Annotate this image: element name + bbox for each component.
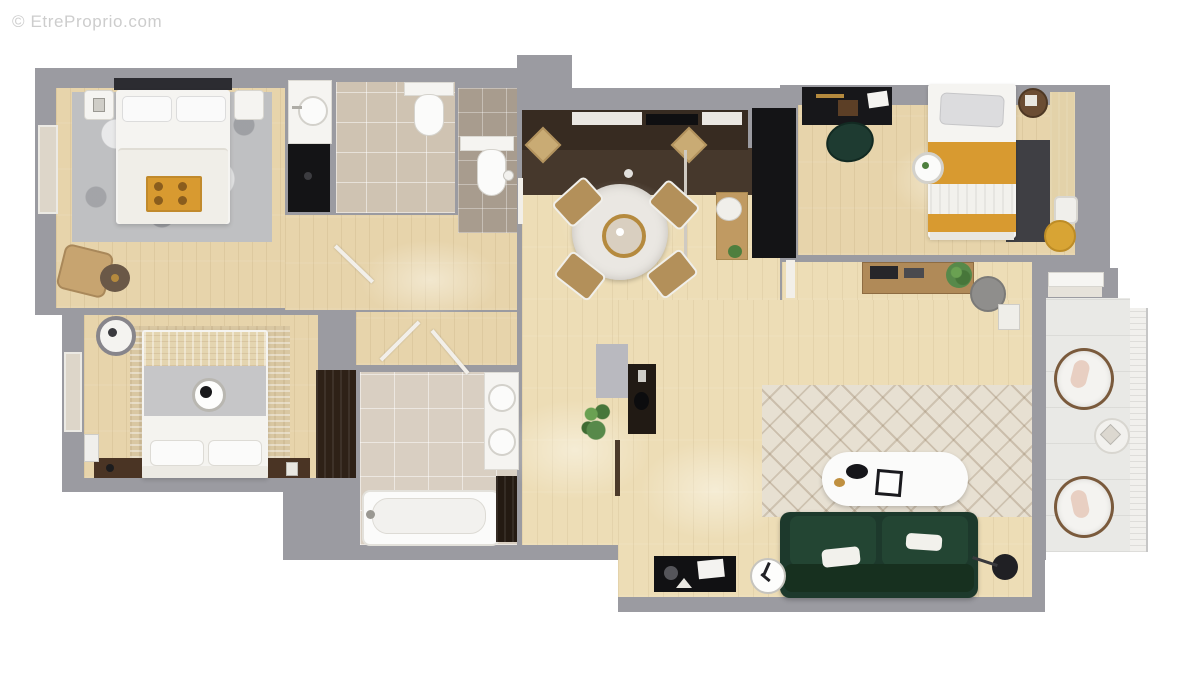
bedroom1-pillow: [122, 96, 172, 122]
console-vase: [634, 392, 649, 410]
desk-chair-white: [716, 197, 742, 221]
floor-kitchen-dark: [522, 148, 780, 195]
kitchen-tall-wardrobe: [752, 108, 796, 258]
desk-paper: [867, 91, 889, 109]
shower-room-sink: [298, 96, 328, 126]
sofa-pillow: [905, 533, 942, 551]
console-decor-dark: [870, 266, 898, 279]
bedroom2-window: [64, 352, 82, 432]
balcony-door: [1048, 272, 1104, 287]
nightstand-item: [106, 464, 114, 472]
bedroom2-footboard: [142, 466, 268, 478]
bedroom2-nightstand-left: [94, 458, 142, 478]
living-plant: [580, 398, 612, 444]
bedroom1-headboard: [114, 78, 232, 90]
kitchen-counter-marble: [572, 112, 642, 125]
bedroom2-radiator: [84, 434, 99, 462]
bedroom2-pillow: [208, 440, 262, 466]
nightstand-lamp: [93, 98, 105, 112]
living-wall-stub: [596, 344, 628, 398]
floor-lamp: [992, 554, 1018, 580]
living-hall-door: [615, 440, 620, 496]
tv-console-papers: [697, 559, 725, 580]
desk-pen-strip: [816, 94, 844, 98]
shower-drain: [304, 172, 312, 180]
bedroom2-top-blanket: [144, 332, 266, 366]
floor-plan-canvas: © EtreProprio.com: [0, 0, 1200, 675]
bathroom2-cabinet: [496, 476, 517, 542]
kitchen-door: [518, 178, 523, 224]
ceiling-light-dot: [624, 169, 633, 178]
tray-plate: [154, 182, 163, 191]
coffee-table-gold-item: [834, 478, 845, 487]
console-plant: [946, 262, 972, 288]
tray-plate: [178, 182, 187, 191]
bathtub-faucet: [366, 510, 375, 519]
bedroom3-pillow: [939, 92, 1005, 127]
tray-plate: [154, 196, 163, 205]
coffee-table-frame: [875, 469, 903, 497]
bathtub-inner: [372, 498, 486, 534]
side-table-plant-dot: [922, 162, 929, 169]
toilet2-bowl: [477, 149, 506, 196]
bedroom1-breakfast-tray: [146, 176, 202, 212]
bedroom2-pillow: [150, 440, 204, 466]
console-candle: [638, 370, 646, 382]
decor-plate-center: [200, 386, 212, 398]
balcony-threshold: [1048, 287, 1102, 297]
tray-plate: [178, 196, 187, 205]
coffee-table-bowl: [846, 464, 868, 479]
vanity-tap: [292, 106, 302, 109]
bedroom1-window: [38, 125, 58, 214]
pendant-light: [602, 214, 646, 258]
vanity-sink: [488, 428, 516, 456]
hall-wardrobe-tv-panel: [316, 370, 356, 478]
living-side-table: [998, 304, 1020, 330]
bedroom3-mustard-foot: [928, 214, 1016, 232]
mirror-center: [108, 328, 117, 337]
tv-console-disc: [664, 566, 678, 580]
desk-tray: [838, 100, 858, 116]
yellow-pouf: [1044, 220, 1076, 252]
sofa-back: [784, 564, 974, 592]
vanity-sink: [488, 384, 516, 412]
desk-plant-small: [728, 245, 742, 258]
watermark: © EtreProprio.com: [12, 12, 162, 32]
kitchen-counter-white: [702, 112, 742, 125]
nightstand-item: [286, 462, 298, 476]
side-table-gold-dot: [111, 274, 119, 282]
toilet1-bowl: [414, 94, 444, 136]
nightstand-book: [1025, 95, 1037, 106]
bedroom2-wall-mirror: [96, 316, 136, 356]
bedroom1-pillow: [176, 96, 226, 122]
bedroom3-footboard: [930, 232, 1014, 240]
console-book: [904, 268, 924, 278]
bedroom1-nightstand-right: [234, 90, 264, 120]
kitchen-cooktop: [646, 114, 698, 125]
pendant-center: [616, 228, 624, 236]
wc-shower-head: [503, 170, 514, 181]
bedroom3-side-table: [912, 152, 944, 184]
bedroom3-sheet-fold: [930, 184, 1014, 214]
bedroom3-door: [786, 260, 795, 298]
balcony-railing: [1130, 308, 1148, 552]
